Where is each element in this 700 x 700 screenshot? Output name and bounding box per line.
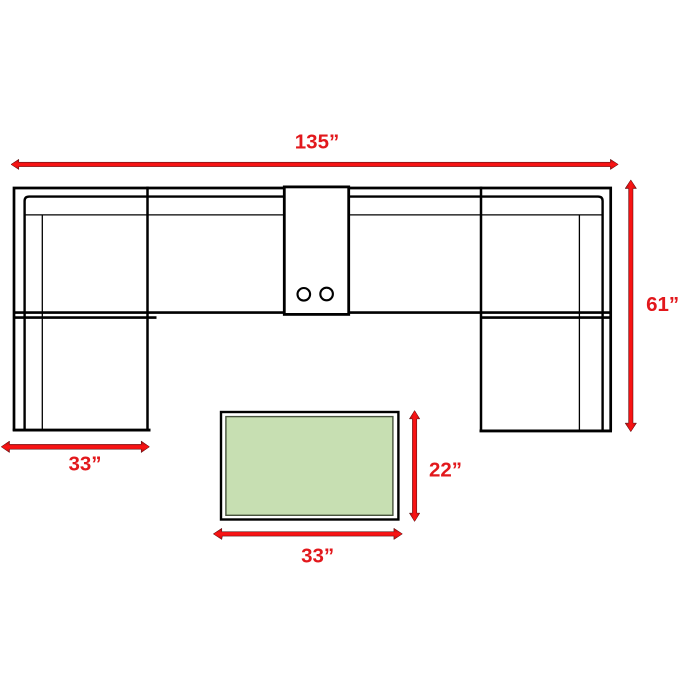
svg-text:33”: 33” (68, 453, 101, 476)
svg-text:61”: 61” (646, 293, 679, 316)
svg-text:33”: 33” (301, 545, 334, 568)
svg-text:135”: 135” (295, 131, 339, 154)
svg-text:22”: 22” (429, 459, 462, 482)
